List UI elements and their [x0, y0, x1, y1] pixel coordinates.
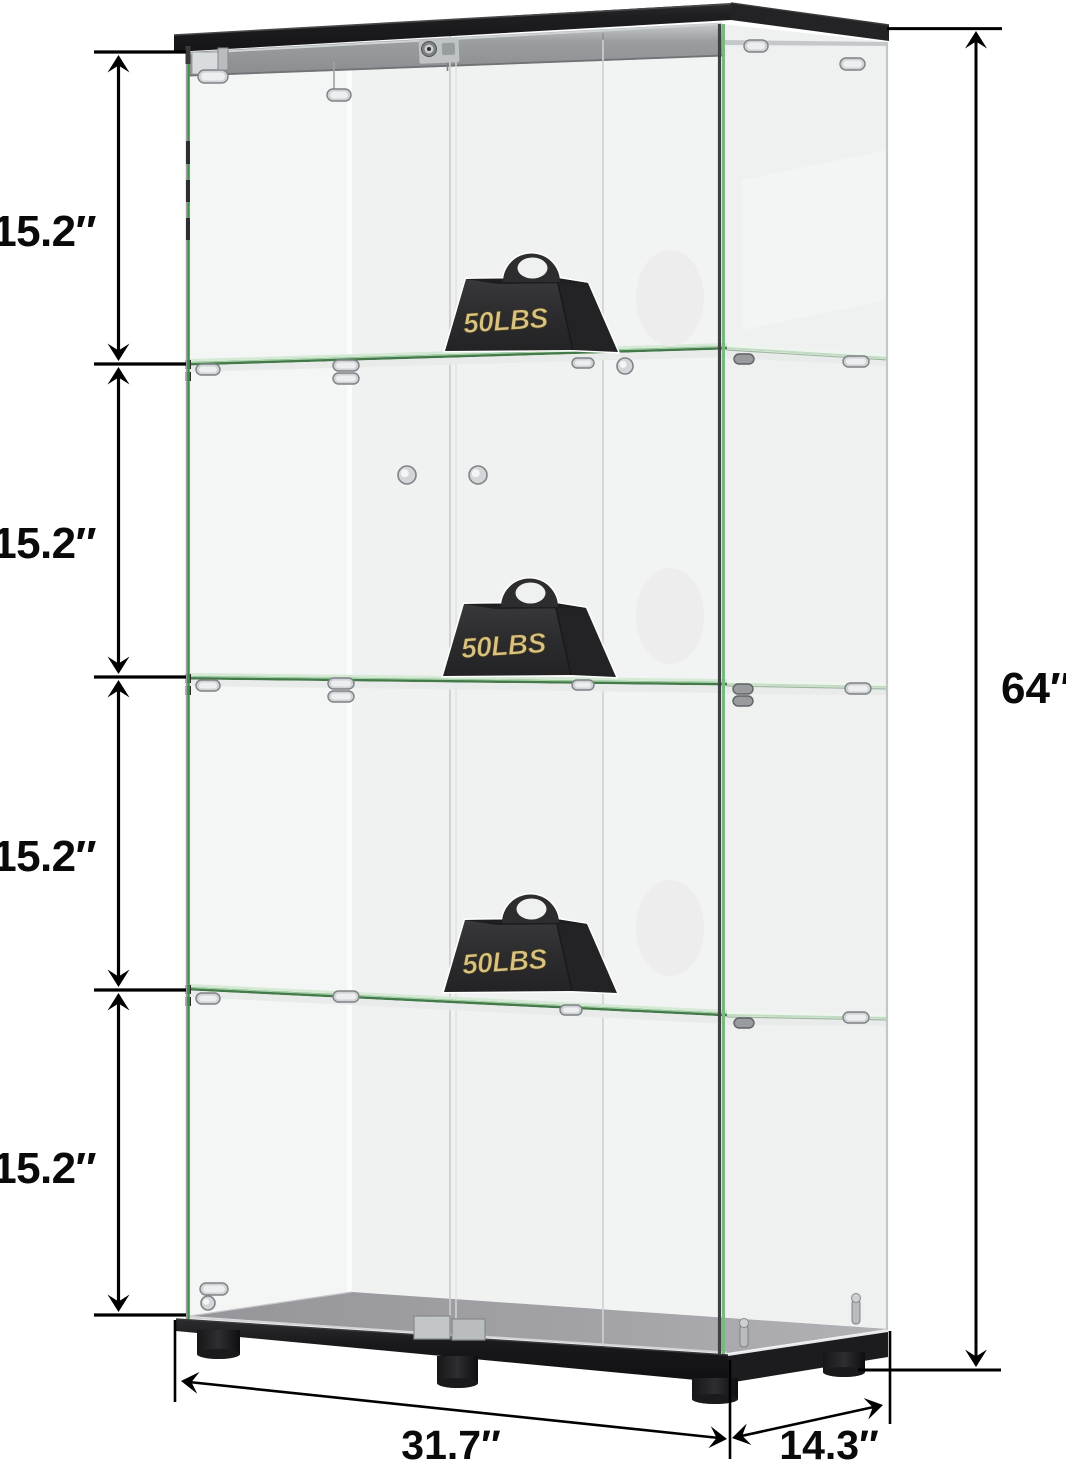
svg-text:31.7″: 31.7″ [401, 1422, 500, 1464]
svg-text:50LBS: 50LBS [460, 627, 547, 664]
svg-text:15.2″: 15.2″ [0, 832, 97, 881]
svg-text:15.2″: 15.2″ [0, 1144, 97, 1193]
svg-text:50LBS: 50LBS [461, 943, 548, 980]
svg-text:15.2″: 15.2″ [0, 519, 97, 568]
svg-text:14.3″: 14.3″ [779, 1422, 878, 1464]
svg-text:64″: 64″ [1001, 664, 1066, 713]
svg-text:15.2″: 15.2″ [0, 207, 97, 256]
svg-text:50LBS: 50LBS [462, 302, 549, 339]
